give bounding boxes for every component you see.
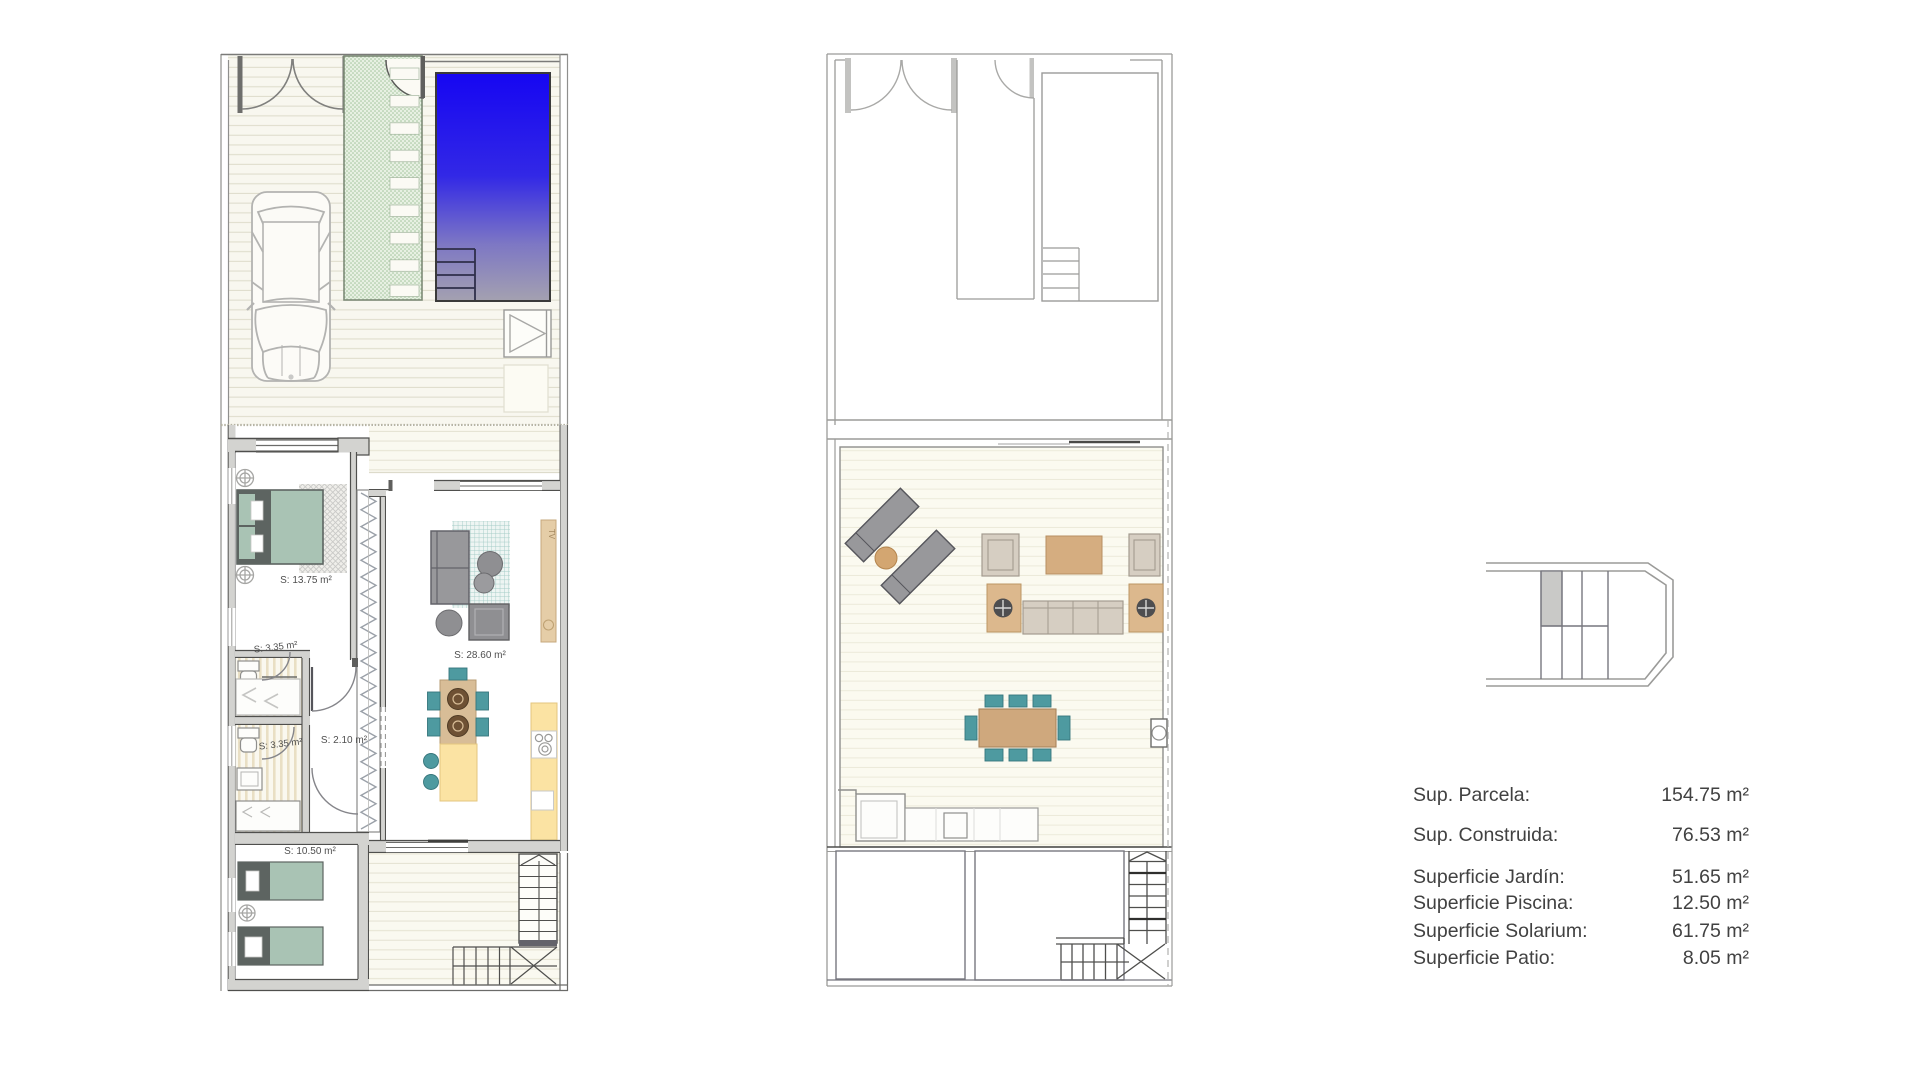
- svg-text:S: 10.50 m²: S: 10.50 m²: [284, 846, 336, 857]
- svg-text:S: 2.10 m²: S: 2.10 m²: [321, 735, 368, 746]
- svg-text:51.65 m²: 51.65 m²: [1672, 866, 1749, 888]
- svg-text:Superficie Patio:: Superficie Patio:: [1413, 947, 1555, 969]
- svg-text:Superficie Solarium:: Superficie Solarium:: [1413, 920, 1588, 942]
- svg-text:TV: TV: [547, 529, 556, 540]
- svg-text:12.50 m²: 12.50 m²: [1672, 892, 1749, 914]
- svg-text:8.05 m²: 8.05 m²: [1683, 947, 1750, 969]
- svg-text:Sup. Parcela:: Sup. Parcela:: [1413, 784, 1530, 806]
- svg-text:154.75 m²: 154.75 m²: [1661, 784, 1749, 806]
- svg-text:S: 28.60 m²: S: 28.60 m²: [454, 650, 506, 661]
- svg-text:61.75 m²: 61.75 m²: [1672, 920, 1749, 942]
- svg-text:Sup. Construida:: Sup. Construida:: [1413, 824, 1558, 846]
- svg-text:Superficie Piscina:: Superficie Piscina:: [1413, 892, 1573, 914]
- svg-text:Superficie Jardín:: Superficie Jardín:: [1413, 866, 1565, 888]
- svg-text:76.53 m²: 76.53 m²: [1672, 824, 1749, 846]
- svg-text:S: 13.75 m²: S: 13.75 m²: [280, 575, 332, 586]
